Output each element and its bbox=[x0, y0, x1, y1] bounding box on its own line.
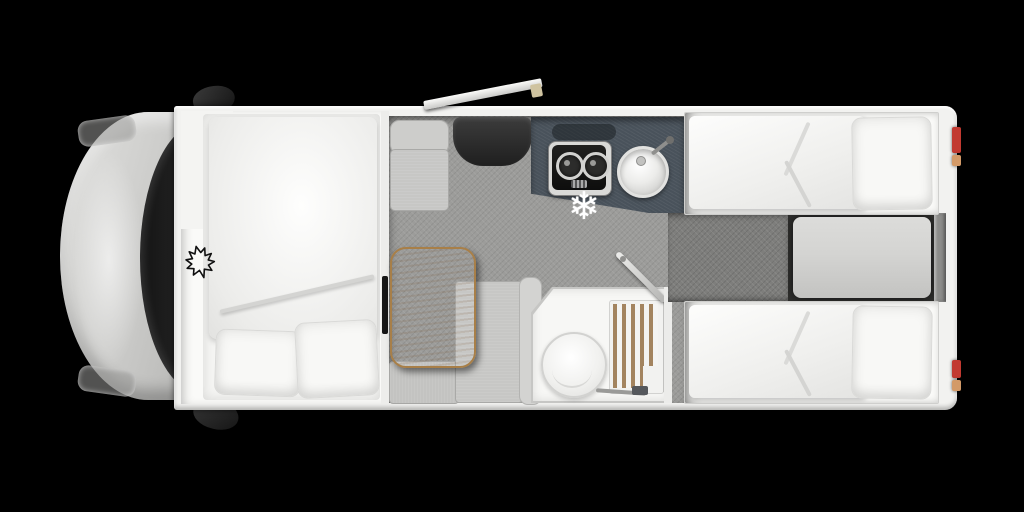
motorhome-floorplan: ❄ bbox=[0, 0, 1024, 512]
faucet-head bbox=[666, 136, 674, 144]
burner-left-cap bbox=[564, 160, 570, 166]
bathroom-wall-right bbox=[664, 287, 672, 403]
rear-bed-top-duvet bbox=[689, 116, 865, 209]
rear-walkway bbox=[668, 213, 790, 302]
entry-step-mat bbox=[453, 117, 532, 166]
rear-bed-bottom-duvet bbox=[689, 305, 865, 398]
toilet-bowl bbox=[552, 352, 592, 388]
tv-panel bbox=[382, 276, 388, 334]
entry-door-handle bbox=[530, 83, 543, 98]
partition-wall bbox=[381, 111, 389, 404]
cab-hood-highlight bbox=[74, 150, 144, 370]
kitchen-sink bbox=[617, 146, 669, 198]
bathroom-door-knob bbox=[620, 256, 626, 262]
kitchen-counter-recess bbox=[552, 124, 616, 140]
taillight-amber-bottom bbox=[952, 380, 961, 391]
burner-right bbox=[582, 152, 610, 180]
shower-mixer bbox=[632, 386, 648, 395]
rear-wall-trim bbox=[934, 213, 946, 302]
snowflake-icon: ❄ bbox=[563, 184, 605, 228]
front-bed-pillow-right bbox=[294, 319, 380, 399]
lounge-seat bbox=[390, 149, 449, 211]
taillight-red-bottom bbox=[952, 360, 961, 378]
sink-drain bbox=[636, 156, 646, 166]
taillight-amber-top bbox=[952, 155, 961, 166]
front-bed-pillow-left bbox=[214, 329, 302, 398]
dinette-table bbox=[390, 247, 476, 368]
burner-right-cap bbox=[590, 160, 596, 166]
rear-step-platform bbox=[793, 217, 931, 298]
taillight-red-top bbox=[952, 127, 961, 153]
rear-bed-top-pillow bbox=[851, 116, 933, 210]
rear-bed-bottom-pillow bbox=[851, 305, 933, 399]
burner-left bbox=[556, 152, 584, 180]
